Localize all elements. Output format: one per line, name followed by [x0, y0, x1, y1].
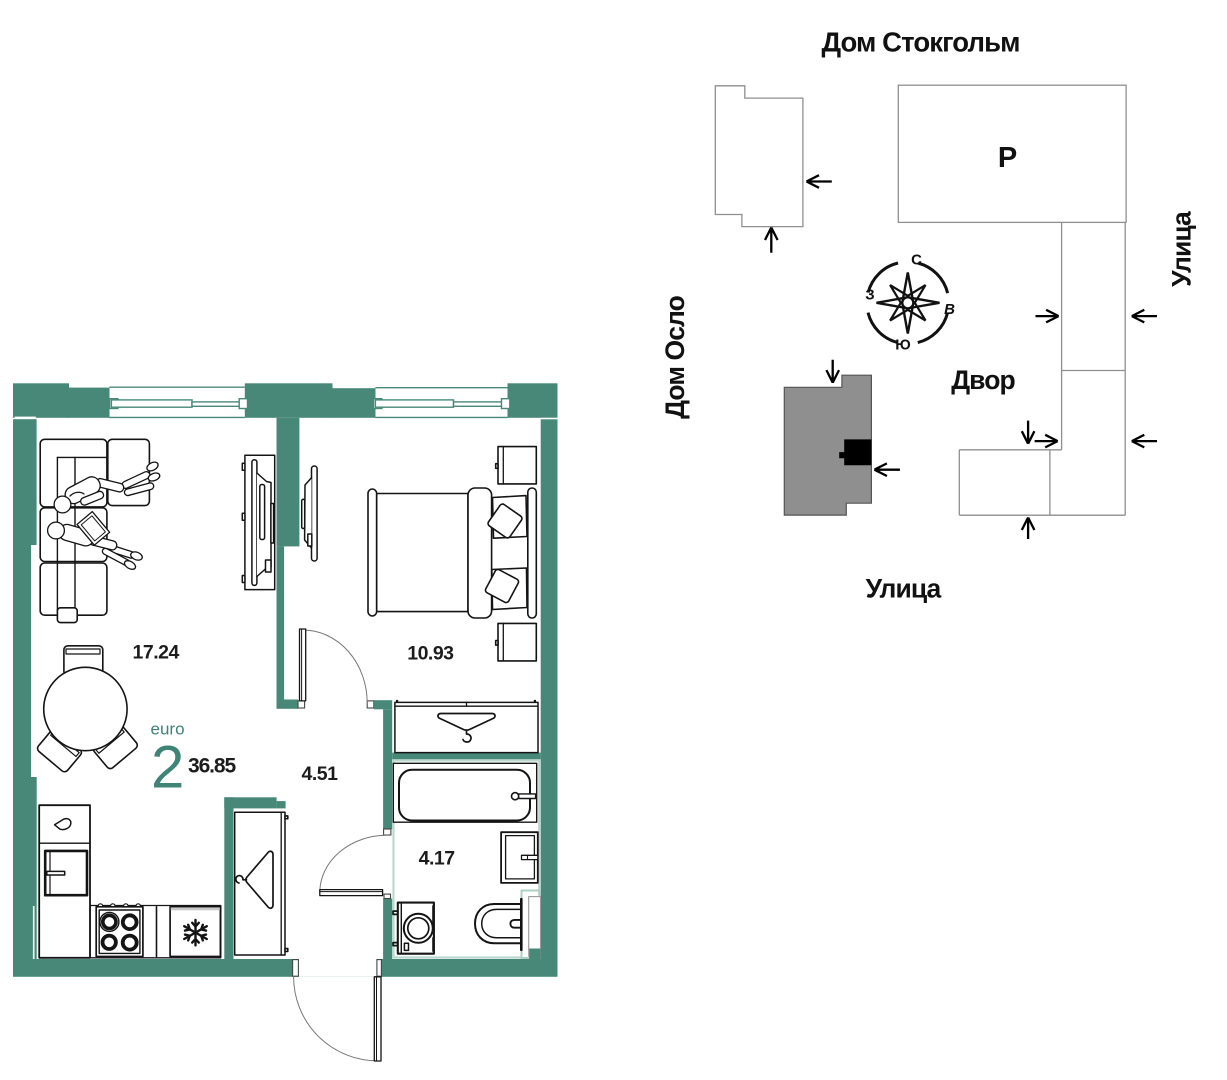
svg-text:4.17: 4.17: [419, 848, 455, 870]
svg-text:17.24: 17.24: [133, 641, 180, 663]
svg-text:Двор: Двор: [951, 365, 1015, 395]
svg-text:4.51: 4.51: [302, 763, 339, 785]
svg-text:Ю: Ю: [895, 337, 910, 354]
svg-text:В: В: [944, 301, 955, 318]
svg-text:Улица: Улица: [866, 574, 942, 604]
svg-text:З: З: [865, 287, 874, 304]
svg-text:36.85: 36.85: [188, 755, 236, 778]
svg-text:Улица: Улица: [1167, 211, 1197, 287]
svg-text:Дом Осло: Дом Осло: [660, 295, 690, 419]
svg-text:Р: Р: [998, 142, 1017, 174]
svg-text:10.93: 10.93: [407, 642, 454, 664]
svg-text:С: С: [911, 252, 922, 269]
svg-text:2: 2: [151, 734, 184, 801]
svg-text:Дом Стокгольм: Дом Стокгольм: [821, 27, 1019, 58]
